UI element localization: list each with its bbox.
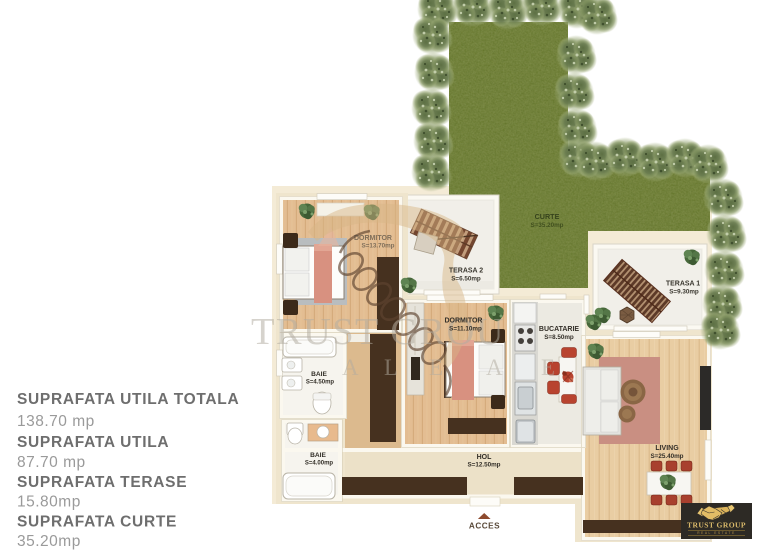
svg-text:ACCES: ACCES bbox=[469, 522, 500, 531]
svg-text:SUPRAFATA UTILA TOTALA: SUPRAFATA UTILA TOTALA bbox=[17, 391, 239, 408]
svg-text:REAL ESTATE: REAL ESTATE bbox=[697, 531, 736, 535]
svg-text:L: L bbox=[384, 355, 398, 380]
svg-text:15.80mp: 15.80mp bbox=[17, 494, 81, 511]
svg-text:S=6.50mp: S=6.50mp bbox=[451, 276, 481, 283]
svg-text:A: A bbox=[342, 355, 359, 380]
svg-text:DORMITOR: DORMITOR bbox=[354, 235, 392, 242]
svg-text:S=13.70mp: S=13.70mp bbox=[361, 243, 394, 250]
svg-text:E: E bbox=[429, 355, 443, 380]
svg-text:TRUST GROUP: TRUST GROUP bbox=[687, 521, 746, 530]
svg-text:SUPRAFATA UTILA: SUPRAFATA UTILA bbox=[17, 434, 169, 451]
svg-text:S=12.50mp: S=12.50mp bbox=[467, 462, 500, 469]
svg-text:S=9.30mp: S=9.30mp bbox=[669, 289, 699, 296]
svg-text:S=4.50mp: S=4.50mp bbox=[306, 380, 335, 386]
svg-text:LIVING: LIVING bbox=[655, 445, 679, 452]
svg-text:CURTE: CURTE bbox=[535, 212, 560, 221]
svg-text:S=8.50mp: S=8.50mp bbox=[544, 334, 574, 341]
svg-text:S=35.20mp: S=35.20mp bbox=[530, 222, 563, 229]
svg-text:BUCATARIE: BUCATARIE bbox=[539, 326, 580, 333]
svg-text:138.70 mp: 138.70 mp bbox=[17, 413, 95, 430]
svg-text:HOL: HOL bbox=[477, 454, 493, 461]
svg-text:S=4.00mp: S=4.00mp bbox=[305, 461, 334, 467]
svg-text:TERASA 1: TERASA 1 bbox=[666, 281, 700, 288]
svg-text:TERASA 2: TERASA 2 bbox=[449, 268, 483, 275]
svg-text:A: A bbox=[486, 355, 503, 380]
svg-text:DORMITOR: DORMITOR bbox=[445, 318, 483, 325]
svg-text:BAIE: BAIE bbox=[310, 452, 326, 459]
svg-text:S=11.10mp: S=11.10mp bbox=[449, 326, 482, 333]
svg-text:SUPRAFATA CURTE: SUPRAFATA CURTE bbox=[17, 514, 177, 531]
svg-text:S=25.40mp: S=25.40mp bbox=[650, 453, 683, 460]
svg-text:E: E bbox=[541, 355, 555, 380]
svg-text:87.70 mp: 87.70 mp bbox=[17, 454, 86, 471]
svg-text:35.20mp: 35.20mp bbox=[17, 533, 81, 550]
svg-text:SUPRAFATA TERASE: SUPRAFATA TERASE bbox=[17, 474, 187, 491]
svg-text:BAIE: BAIE bbox=[311, 371, 327, 378]
